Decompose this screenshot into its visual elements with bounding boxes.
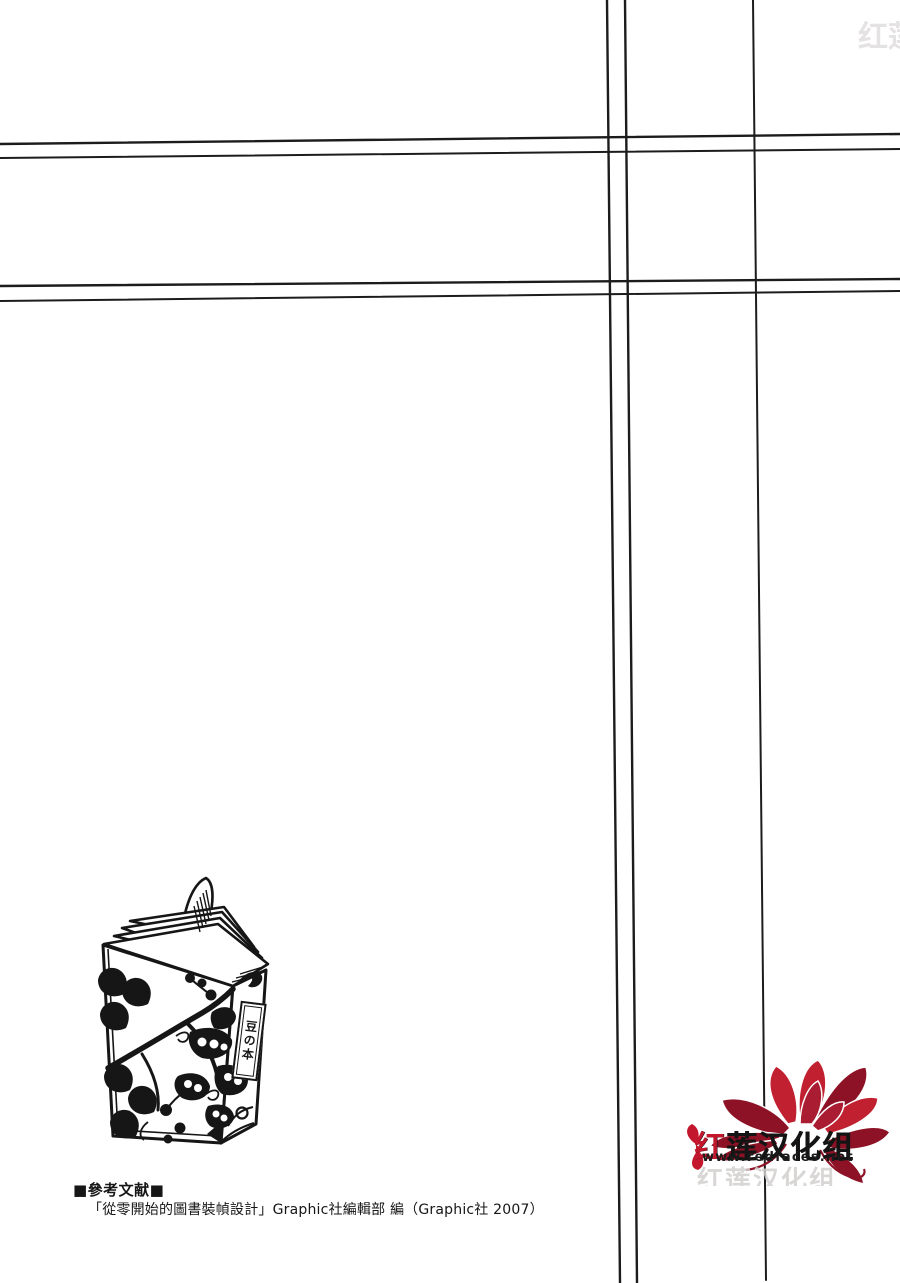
vertical-panel-line-1: [607, 0, 620, 1283]
horizontal-panel-line-4: [0, 291, 900, 301]
references-heading: ■參考文献■: [73, 1179, 164, 1200]
horizontal-panel-line-2: [0, 149, 900, 158]
manga-page: 红莲汉化组: [0, 0, 900, 1283]
vertical-panel-line-2: [625, 0, 637, 1283]
horizontal-panel-line-3: [0, 279, 900, 286]
book-illustration: 豆の本: [90, 866, 286, 1166]
book-spine-label-text: 豆の本: [240, 1019, 257, 1062]
logo-website: www.redfaces.net: [702, 1150, 854, 1165]
corner-ghost-mark: 红莲汉化组: [858, 12, 900, 58]
references-entry: 「從零開始的圖書裝幀設計」Graphic社編輯部 編（Graphic社 2007…: [88, 1199, 544, 1219]
scanlation-logo: 红莲汉化组 红莲汉化组 www.redfaces.net: [682, 1054, 900, 1190]
horizontal-panel-line-1: [0, 134, 900, 144]
